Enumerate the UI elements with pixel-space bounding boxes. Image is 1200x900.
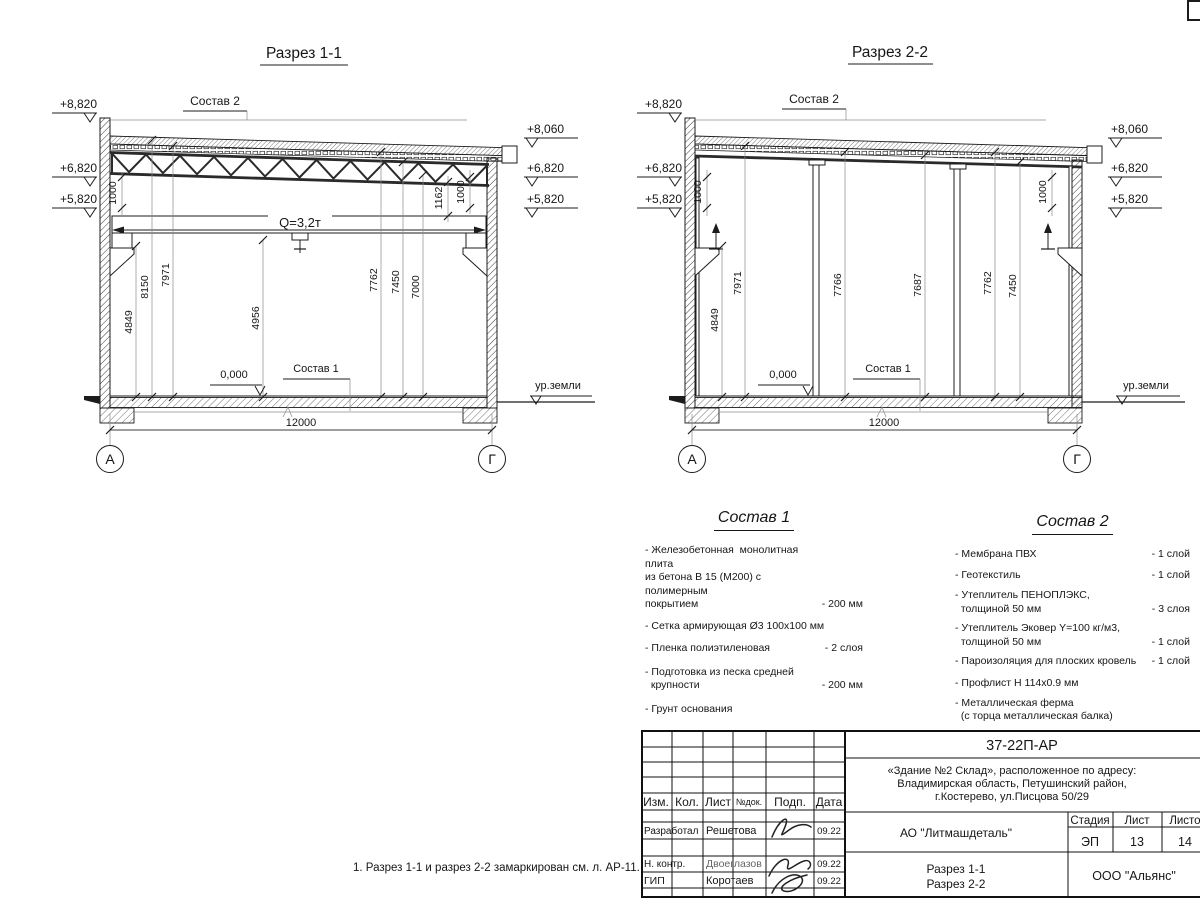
sheet-note: 1. Разрез 1-1 и разрез 2-2 замаркирован … [353,862,643,874]
floor [669,396,1185,423]
elevation-label: +8,820 [60,97,97,111]
dim-label: 4849 [709,308,721,332]
row-role: Разработал [644,825,699,837]
material-text: - Пленка полиэтиленовая [645,642,770,655]
sections-drawing: Разрез 1-1 Q=3,2т [0,0,1200,500]
material-text: - Мембрана ПВХ [955,548,1037,561]
roof [695,120,1102,167]
row-date: 09.22 [817,826,841,837]
row-date: 09.22 [817,876,841,887]
material-value: - 200 мм [816,679,863,692]
material-item: - Мембрана ПВХ - 1 слой [955,548,1190,561]
doc-code: 37-22П-АР [986,738,1058,754]
crane-trolley [292,233,308,253]
material-value: - 1 слой [1146,548,1190,561]
row-name: Коротаев [706,875,754,887]
zero-label: 0,000 [220,369,248,381]
dim-label: 7971 [732,271,744,295]
material-item: - Профлист Н 114х0.9 мм [955,677,1190,690]
dim-label: 7000 [410,275,422,299]
zero-label: 0,000 [769,369,797,381]
material-item: - Утеплитель Эковер Y=100 кг/м3, толщино… [955,622,1190,649]
dim-label: 4849 [123,310,135,334]
axis-letter: Г [488,451,496,467]
elevation-marks-right: +8,060 +6,820 +5,820 [524,122,578,217]
dim-label: 7450 [390,270,402,294]
material-text: - Сетка армирующая Ø3 100х100 мм [645,620,824,633]
material-text: - Утеплитель Эковер Y=100 кг/м3, толщино… [955,622,1120,649]
wall-right [487,158,497,408]
material-text: - Геотекстиль [955,569,1021,582]
material-value: - 3 слоя [1146,603,1190,616]
object-line: Владимирская область, Петушинский район, [897,778,1126,790]
span-dimension: 12000 А Г [97,414,506,473]
material-item: - Грунт основания [645,703,863,716]
sheet-value: 13 [1130,835,1144,849]
material-item: - Утеплитель ПЕНОПЛЭКС, толщиной 50 мм -… [955,589,1190,616]
dim-label: 7762 [982,271,994,295]
elevation-marks-left: +8,820 +6,820 +5,820 [52,97,97,217]
dim-label: 7766 [832,273,844,297]
row-role: Н. контр. [644,859,685,870]
material-item: - Геотекстиль - 1 слой [955,569,1190,582]
axis-letter: Г [1073,451,1081,467]
material-value: - 2 слоя [819,642,863,655]
dim-label: 4956 [250,306,262,330]
material-text: - Грунт основания [645,703,732,716]
section-2-2: Разрез 2-2 [637,44,1185,473]
ground-label: ур.земли [535,380,581,392]
drawing-sheet: Разрез 1-1 Q=3,2т [0,0,1200,900]
sostav2-callout: Состав 2 [183,94,247,120]
col-ndoc: №док. [736,797,762,807]
elevation-label: +6,820 [1111,161,1148,175]
dim-label: 7450 [1007,274,1019,298]
row-role: ГИП [644,875,665,887]
material-text: - Подготовка из песка средней крупности [645,666,794,693]
foundation-left [685,408,719,423]
dim-label: 8150 [139,275,151,299]
material-value: - 1 слой [1146,569,1190,582]
ground-level-mark: ур.земли [1116,380,1180,404]
section-title: Разрез 2-2 [852,44,928,61]
sostav2-label: Состав 2 [190,94,240,108]
material-value: - 200 мм [816,598,863,611]
ground-label: ур.земли [1123,380,1169,392]
material-item: - Металлическая ферма (с торца металличе… [955,697,1190,724]
sostav2-callout: Состав 2 [782,92,846,120]
material-value: - 1 слой [1146,655,1190,668]
axis-letter: А [687,451,697,467]
anchor-left [709,223,723,249]
sostav2-list: Состав 2 - Мембрана ПВХ - 1 слой - Геоте… [955,512,1190,724]
material-item: - Железобетонная монолитная плита из бет… [645,544,863,611]
customer-name: АО "Литмашдеталь" [900,826,1012,840]
span-dim-label: 12000 [286,417,317,429]
dim-label: 7971 [160,263,172,287]
sostav1-title: Состав 1 [645,508,863,531]
elevation-marks-right: +8,060 +6,820 +5,820 [1108,122,1162,217]
elevation-label: +5,820 [527,192,564,206]
elevation-label: +8,060 [1111,122,1148,136]
material-text: - Утеплитель ПЕНОПЛЭКС, толщиной 50 мм [955,589,1090,616]
dim-label: 1000 [1037,180,1049,204]
elevation-label: +6,820 [645,161,682,175]
elevation-label: +6,820 [60,161,97,175]
dim-label: 1000 [692,180,704,204]
dim-label: 7762 [368,268,380,292]
zero-level-mark: 0,000 [758,369,813,395]
anchor-right [1041,223,1055,249]
material-value: - 1 слой [1146,636,1190,649]
ground-level-mark: ур.земли [530,380,592,404]
material-item: - Сетка армирующая Ø3 100х100 мм [645,620,863,633]
wall-left [100,118,110,408]
axis-letter: А [105,451,115,467]
elevation-label: +6,820 [527,161,564,175]
col-kol: Кол. [675,795,699,809]
row-name: Двоеглазов [706,858,762,870]
sheet-title-line: Разрез 1-1 [927,862,986,876]
row-name: Решетова [706,825,757,837]
object-line: г.Костерево, ул.Писцова 50/29 [935,791,1089,803]
floor [84,396,595,423]
elevation-marks-left: +8,820 +6,820 +5,820 [637,97,682,217]
sheets-value: 14 [1178,835,1192,849]
sostav1-label: Состав 1 [865,363,911,375]
span-dimension: 12000 А Г [679,414,1091,473]
sostav2-title: Состав 2 [955,512,1190,535]
wall-left [685,118,695,408]
col-podp: Подп. [774,795,806,809]
bracket-right [463,248,487,276]
col-list: Лист [705,795,732,809]
sostav1-list: Состав 1 - Железобетонная монолитная пли… [645,508,863,717]
sheet-header: Лист [1125,815,1151,827]
stage-header: Стадия [1070,815,1109,827]
material-text: - Железобетонная монолитная плита из бет… [645,544,816,611]
col-data: Дата [816,795,843,809]
object-line: «Здание №2 Склад», расположенное по адре… [888,765,1137,777]
elevation-label: +5,820 [60,192,97,206]
bracket-left [695,248,719,276]
elevation-label: +8,820 [645,97,682,111]
zero-level-mark: 0,000 [210,369,265,395]
material-item: - Пароизоляция для плоских кровель - 1 с… [955,655,1190,668]
dim-label: 1162 [433,187,445,210]
row-date: 09.22 [817,859,841,870]
sheet-title-line: Разрез 2-2 [927,877,986,891]
org-name: ООО "Альянс" [1092,869,1176,883]
crane-capacity-label: Q=3,2т [279,215,321,230]
dim-label: 1000 [455,180,467,204]
title-block: Изм. Кол. Лист №док. Дата Подп. Дата Раз… [641,725,1200,900]
span-dim-label: 12000 [869,417,900,429]
col-izm: Изм. [643,795,669,809]
sostav1-label: Состав 1 [293,363,339,375]
section-title: Разрез 1-1 [266,45,342,62]
sostav2-label: Состав 2 [789,92,839,106]
section-1-1: Разрез 1-1 Q=3,2т [52,45,595,473]
material-item: - Пленка полиэтиленовая - 2 слоя [645,642,863,655]
material-text: - Профлист Н 114х0.9 мм [955,677,1078,690]
foundation-left [100,408,134,423]
elevation-label: +8,060 [527,122,564,136]
wall-right [1072,160,1082,408]
dim-label: 1000 [107,181,119,205]
sheets-header: Листов [1169,815,1200,827]
material-item: - Подготовка из песка средней крупности … [645,666,863,693]
dim-label: 7687 [912,273,924,297]
roof [110,120,517,163]
bracket-left [110,248,134,276]
material-text: - Металлическая ферма (с торца металличе… [955,697,1113,724]
elevation-label: +5,820 [1111,192,1148,206]
material-text: - Пароизоляция для плоских кровель [955,655,1136,668]
elevation-label: +5,820 [645,192,682,206]
stage-value: ЭП [1081,835,1099,849]
crane-beam: Q=3,2т [112,215,486,253]
frame-corner [1187,0,1200,21]
